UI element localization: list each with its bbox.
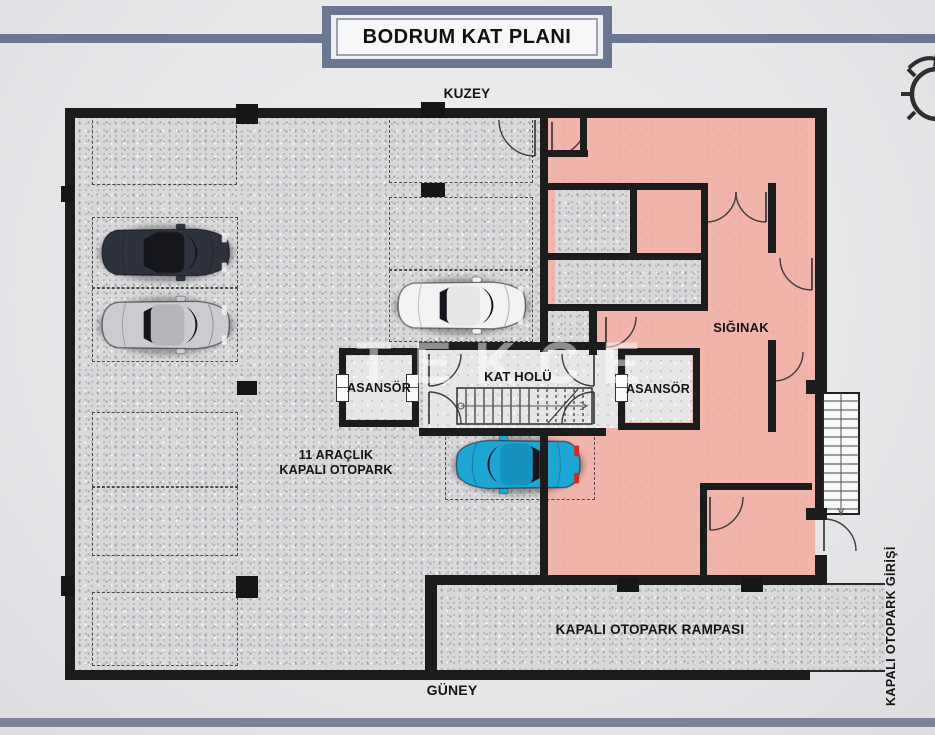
wall-segment: [815, 392, 822, 515]
wall-segment: [540, 428, 548, 578]
wall-segment: [548, 304, 708, 311]
door-arc: [780, 258, 812, 290]
wall-segment: [339, 420, 419, 427]
door-arc: [562, 354, 594, 386]
pillar: [237, 381, 257, 395]
ramp-label: KAPALI OTOPARK RAMPASI: [556, 622, 745, 637]
pillar: [741, 578, 763, 592]
door-arc: [499, 120, 535, 156]
car-teal: [449, 430, 587, 499]
elevator-left-label: ASANSÖR: [347, 381, 411, 395]
wall-segment: [806, 380, 827, 394]
door-arc: [562, 392, 594, 424]
wall-segment: [589, 311, 597, 355]
floor-hall-label: KAT HOLÜ: [484, 369, 552, 384]
wall-segment: [540, 118, 548, 352]
door-arc: [706, 192, 736, 222]
pillar: [421, 102, 445, 118]
wall-segment: [548, 183, 708, 190]
door-arc: [774, 352, 803, 381]
car-white: [391, 272, 533, 339]
door-arc: [606, 317, 636, 347]
wall-segment: [618, 348, 700, 355]
floor-plan-page: BODRUM KAT PLANI KUZEY: [0, 0, 935, 735]
wall-segment: [580, 118, 587, 157]
north-label: KUZEY: [444, 86, 491, 101]
door-arc: [736, 192, 766, 222]
wall-segment: [548, 253, 708, 260]
wall-segment: [700, 483, 707, 575]
south-label: GÜNEY: [427, 682, 478, 698]
door-arc: [429, 354, 461, 386]
wall-segment: [630, 183, 637, 260]
elevator-right-label: ASANSÖR: [626, 382, 690, 396]
pillar: [61, 576, 73, 596]
door-arc: [824, 519, 856, 551]
car-dark: [95, 219, 237, 286]
wall-segment: [815, 108, 827, 392]
garage-entrance-label: KAPALI OTOPARK GİRİŞİ: [884, 540, 914, 712]
wall-segment: [425, 575, 437, 680]
parking-label-line1: 11 ARAÇLIK: [279, 448, 392, 463]
wall-segment: [419, 342, 606, 350]
car-silver: [95, 291, 237, 359]
wall-segment: [701, 183, 708, 311]
door-arc: [429, 392, 461, 424]
wall-segment: [618, 423, 700, 430]
parking-label: 11 ARAÇLIK KAPALI OTOPARK: [279, 448, 392, 478]
shelter-label: SIĞINAK: [713, 320, 769, 335]
wall-segment: [768, 340, 776, 432]
parking-label-line2: KAPALI OTOPARK: [279, 463, 392, 478]
wall-segment: [700, 483, 812, 490]
wall-segment: [339, 348, 419, 355]
pillar: [421, 183, 445, 197]
wall-segment: [768, 183, 776, 253]
wall-segment: [419, 428, 606, 436]
pillar: [61, 186, 73, 202]
pillar: [236, 576, 258, 598]
wall-segment: [65, 670, 810, 680]
door-arc: [710, 497, 743, 530]
pillar: [236, 104, 258, 124]
wall-segment: [65, 108, 827, 118]
wall-segment: [693, 348, 700, 430]
wall-segment: [806, 508, 827, 520]
pillar: [617, 578, 639, 592]
